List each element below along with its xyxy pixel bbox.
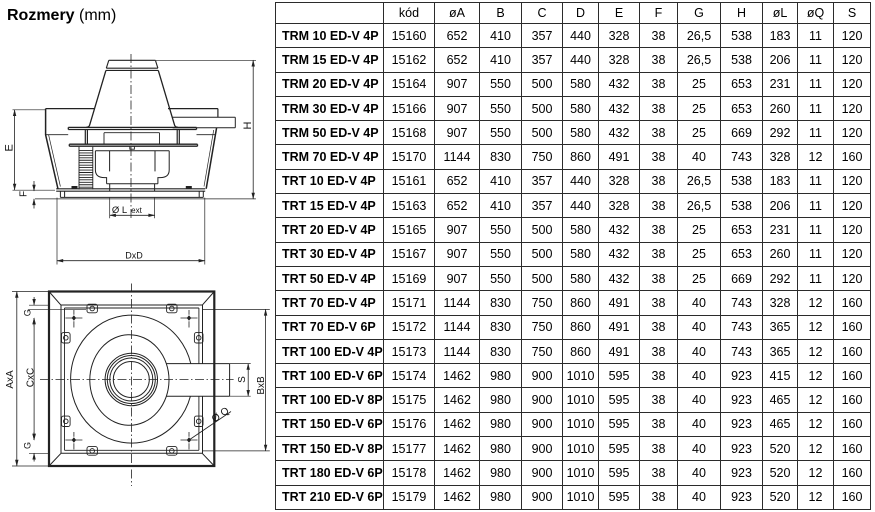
svg-text:BxB: BxB xyxy=(256,376,267,395)
svg-text:S: S xyxy=(237,376,248,383)
svg-text:F: F xyxy=(19,191,30,197)
svg-text:CxC: CxC xyxy=(26,368,37,387)
svg-text:E: E xyxy=(4,144,16,151)
svg-text:AxA: AxA xyxy=(5,370,16,389)
svg-text:H: H xyxy=(242,121,254,129)
svg-text:Ø L: Ø L xyxy=(112,205,127,216)
svg-text:G: G xyxy=(23,309,33,316)
svg-text:G: G xyxy=(23,442,33,449)
svg-text:DxD: DxD xyxy=(125,251,143,261)
svg-text:Ø Q: Ø Q xyxy=(210,405,232,425)
svg-text:ext: ext xyxy=(131,206,142,215)
